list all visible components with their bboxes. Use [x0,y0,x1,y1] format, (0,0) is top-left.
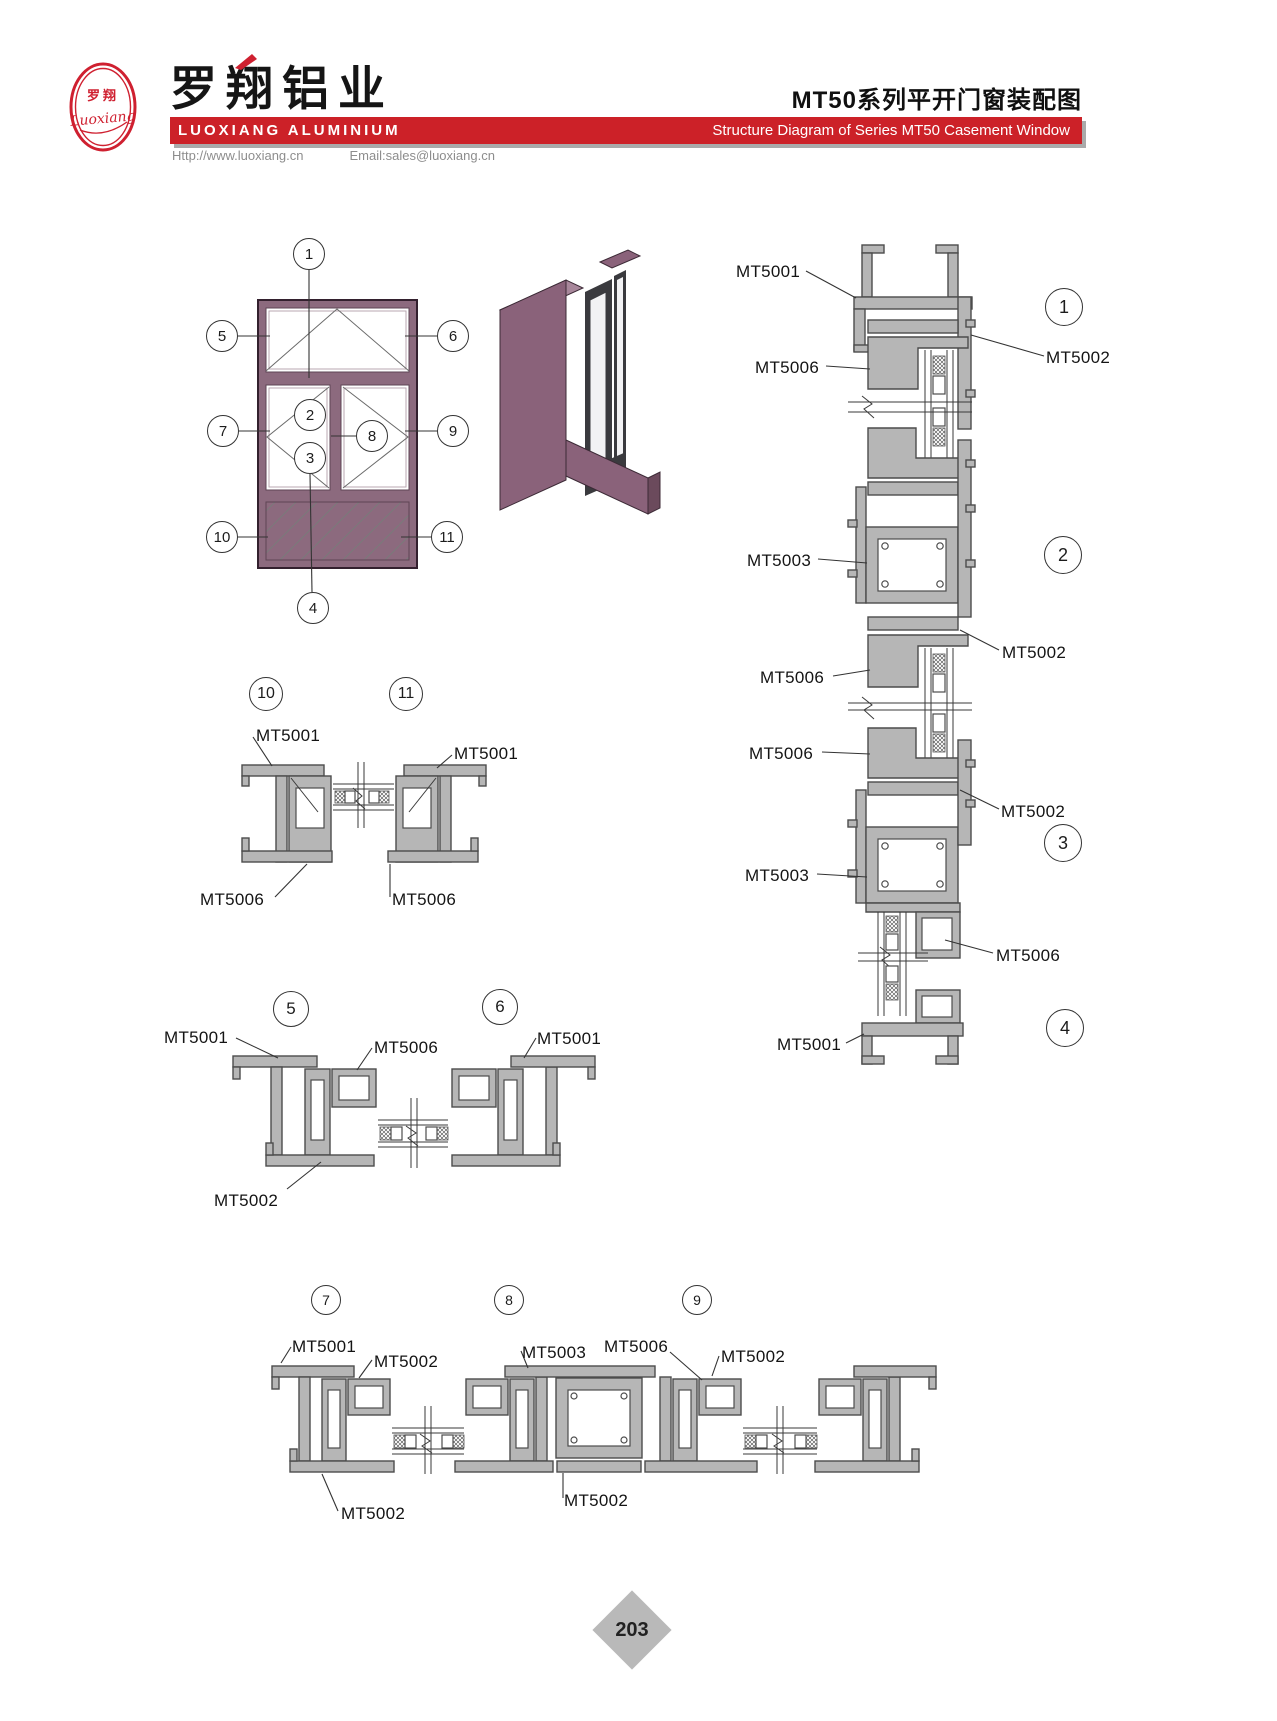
callout-10: 10 [206,521,238,553]
part-label-mt5006: MT5006 [374,1038,438,1058]
page: 罗翔 Luoxiang 罗翔铝业 MT50系列平开门窗装配图 LUOXIANG … [0,0,1277,1721]
callout-8: 8 [356,420,388,452]
part-label-mt5002: MT5002 [1046,348,1110,368]
callout-2: 2 [294,399,326,431]
part-label-mt5002: MT5002 [341,1504,405,1524]
part-label-mt5002: MT5002 [214,1191,278,1211]
callout-4: 4 [1046,1009,1084,1047]
part-label-mt5001: MT5001 [736,262,800,282]
part-label-mt5006: MT5006 [200,890,264,910]
callout-6: 6 [437,320,469,352]
detail-trio-7-8-9 [272,1347,936,1511]
part-label-mt5006: MT5006 [749,744,813,764]
callout-7: 7 [207,415,239,447]
callout-5: 5 [206,320,238,352]
callout-9: 9 [437,415,469,447]
part-label-mt5001: MT5001 [256,726,320,746]
callout-11: 11 [431,521,463,553]
part-label-mt5006: MT5006 [760,668,824,688]
callout-5: 5 [273,991,309,1027]
part-label-mt5002: MT5002 [1001,802,1065,822]
page-number: 203 [604,1602,660,1658]
callout-4: 4 [297,592,329,624]
callout-9: 9 [682,1285,712,1315]
part-label-mt5002: MT5002 [1002,643,1066,663]
callout-1: 1 [1045,288,1083,326]
part-label-mt5001: MT5001 [537,1029,601,1049]
part-label-mt5002: MT5002 [374,1352,438,1372]
part-label-mt5002: MT5002 [721,1347,785,1367]
part-label-mt5006: MT5006 [755,358,819,378]
callout-3: 3 [1044,824,1082,862]
callout-3: 3 [294,442,326,474]
callout-8: 8 [494,1285,524,1315]
detail-pair-10-11 [242,737,486,897]
part-label-mt5001: MT5001 [454,744,518,764]
part-label-mt5006: MT5006 [996,946,1060,966]
part-label-mt5003: MT5003 [522,1343,586,1363]
callout-7: 7 [311,1285,341,1315]
part-label-mt5006: MT5006 [604,1337,668,1357]
part-label-mt5001: MT5001 [164,1028,228,1048]
part-label-mt5003: MT5003 [745,866,809,886]
profile-3d-render [500,250,660,514]
part-label-mt5001: MT5001 [292,1337,356,1357]
part-label-mt5006: MT5006 [392,890,456,910]
part-label-mt5001: MT5001 [777,1035,841,1055]
detail-pair-5-6 [233,1038,595,1189]
callout-1: 1 [293,238,325,270]
elevation-diagram [238,270,437,592]
part-label-mt5002: MT5002 [564,1491,628,1511]
callout-11: 11 [389,677,423,711]
callout-10: 10 [249,677,283,711]
callout-6: 6 [482,989,518,1025]
part-label-mt5003: MT5003 [747,551,811,571]
callout-2: 2 [1044,536,1082,574]
technical-drawing-canvas [0,0,1277,1721]
